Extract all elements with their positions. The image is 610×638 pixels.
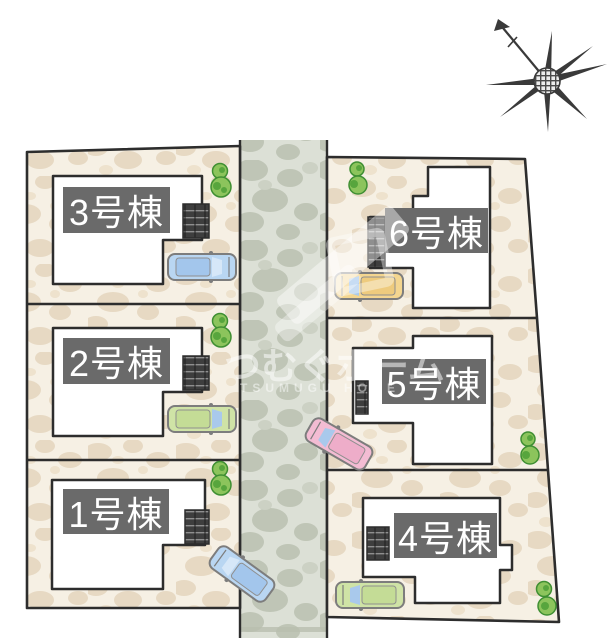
building-label-1: 1号棟 <box>63 489 169 534</box>
porch-hatch-1 <box>185 510 209 544</box>
porch-hatch-6 <box>368 217 385 267</box>
building-label-6: 6号棟 <box>385 208 488 253</box>
building-label-4: 4号棟 <box>394 513 497 558</box>
car-lot6 <box>335 270 403 302</box>
porch-hatch-2 <box>183 356 209 390</box>
car-lot2 <box>168 403 236 435</box>
building-label-2: 2号棟 <box>63 338 170 384</box>
tree-cluster-lot6 <box>349 162 367 194</box>
car-lot4 <box>336 579 404 611</box>
site-plan-drawing <box>0 0 610 638</box>
road <box>240 140 327 638</box>
building-label-3: 3号棟 <box>63 187 170 233</box>
site-plan-canvas: 3号棟 2号棟 1号棟 6号棟 5号棟 4号棟 つむぐホーム TSUMUGU H… <box>0 0 610 638</box>
porch-hatch-5 <box>356 381 368 414</box>
car-lot3 <box>168 251 236 283</box>
porch-hatch-3 <box>183 204 209 238</box>
porch-hatch-4 <box>367 527 389 560</box>
building-label-5: 5号棟 <box>382 359 486 404</box>
compass-north-icon <box>486 19 607 132</box>
